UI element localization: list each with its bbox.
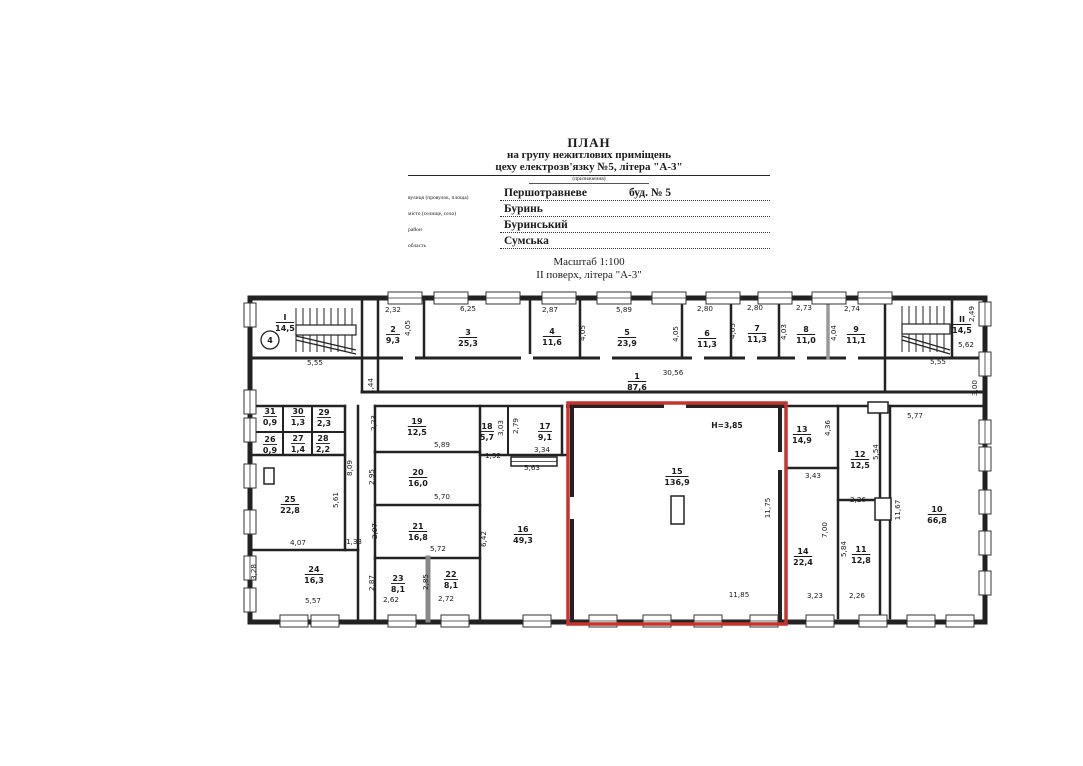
svg-text:8,1: 8,1 xyxy=(444,581,459,590)
dimension-label: 2,80 xyxy=(697,304,713,313)
room-label-11: 1112,8 xyxy=(851,545,871,565)
svg-text:3: 3 xyxy=(465,328,471,337)
dimension-label: 4,04 xyxy=(829,325,838,341)
window-symbol xyxy=(652,292,686,304)
window-symbol xyxy=(388,292,422,304)
dimension-label: 2,23 xyxy=(369,415,378,431)
svg-text:14,5: 14,5 xyxy=(275,324,295,333)
svg-text:15: 15 xyxy=(671,467,683,476)
svg-text:29: 29 xyxy=(318,408,330,417)
room-label-25: 2522,8 xyxy=(280,495,300,515)
dimension-label: 2,62 xyxy=(383,595,399,604)
dimension-label: 2,49 xyxy=(967,306,976,322)
window-symbol xyxy=(979,571,991,595)
dimension-label: 2,95 xyxy=(367,469,376,485)
dimension-label: 5,84 xyxy=(839,541,848,557)
dimension-label: 2,72 xyxy=(438,594,454,603)
svg-text:2,3: 2,3 xyxy=(317,419,331,428)
dimension-label: 6,25 xyxy=(460,304,476,313)
room-label-28: 282,2 xyxy=(316,434,330,454)
svg-text:21: 21 xyxy=(412,522,424,531)
room-label-29: 292,3 xyxy=(317,408,331,428)
svg-text:9,1: 9,1 xyxy=(538,433,553,442)
dimension-label: 3,34 xyxy=(534,445,550,454)
dimension-label: 5,62 xyxy=(958,340,974,349)
window-symbol xyxy=(979,352,991,376)
staircase-left xyxy=(296,308,356,354)
dimension-label: 2,74 xyxy=(844,304,860,313)
dimension-label: 2,32 xyxy=(385,305,401,314)
svg-text:16: 16 xyxy=(517,525,529,534)
dimension-label: 3,23 xyxy=(807,591,823,600)
svg-text:8,1: 8,1 xyxy=(391,585,406,594)
dimension-label: 1,33 xyxy=(346,537,362,546)
svg-text:11,3: 11,3 xyxy=(747,335,767,344)
scanned-plan-page: ПЛАН на групу нежитлових приміщень цеху … xyxy=(0,0,1083,766)
svg-text:25: 25 xyxy=(284,495,296,504)
dimension-label: 5,57 xyxy=(305,596,321,605)
window-symbol xyxy=(812,292,846,304)
svg-text:26: 26 xyxy=(264,435,276,444)
room-label-5: 523,9 xyxy=(617,328,637,348)
svg-text:24: 24 xyxy=(308,565,320,574)
dimension-label: 5,55 xyxy=(930,357,946,366)
dimension-label: 2,85 xyxy=(421,574,430,590)
window-symbol xyxy=(597,292,631,304)
dimension-label: 5,77 xyxy=(907,411,923,420)
window-symbol xyxy=(806,615,834,627)
svg-text:1,4: 1,4 xyxy=(291,445,306,454)
svg-text:30: 30 xyxy=(292,407,304,416)
svg-text:1: 1 xyxy=(634,372,640,381)
svg-text:13: 13 xyxy=(796,425,807,434)
svg-text:14,9: 14,9 xyxy=(792,436,812,445)
svg-text:14: 14 xyxy=(797,547,809,556)
svg-text:22,4: 22,4 xyxy=(793,558,813,567)
svg-text:16,0: 16,0 xyxy=(408,479,428,488)
svg-text:16,8: 16,8 xyxy=(408,533,428,542)
svg-text:12: 12 xyxy=(854,450,865,459)
room-label-26: 260,9 xyxy=(263,435,278,455)
dimension-label: 5,89 xyxy=(434,440,450,449)
svg-text:6: 6 xyxy=(704,329,710,338)
svg-text:49,3: 49,3 xyxy=(513,536,533,545)
dimension-label: 3,00 xyxy=(970,380,979,396)
dimension-label: 3,28 xyxy=(249,564,258,580)
window-symbol xyxy=(244,464,256,488)
svg-text:ІІ: ІІ xyxy=(959,315,965,324)
room-label-27: 271,4 xyxy=(291,434,306,454)
svg-text:136,9: 136,9 xyxy=(664,478,690,487)
room-label-1: 187,6 xyxy=(627,372,647,392)
dimension-label: 8,09 xyxy=(345,460,354,476)
window-symbol xyxy=(441,615,469,627)
svg-text:16,3: 16,3 xyxy=(304,576,324,585)
dimension-label: 5,70 xyxy=(434,492,450,501)
room-label-6: 611,3 xyxy=(697,329,717,349)
window-symbol xyxy=(946,615,974,627)
floor-plan-drawing: 4 І14,5187,629,3325,3411,6523,9611,3711,… xyxy=(0,0,1083,766)
room-label-19: 1912,5 xyxy=(407,417,427,437)
dimension-label: 2,26 xyxy=(849,591,865,600)
dimension-label: 5,89 xyxy=(616,305,632,314)
room-label-31: 310,9 xyxy=(263,407,278,427)
dimension-label: 4,05 xyxy=(671,326,680,342)
svg-text:18: 18 xyxy=(481,422,493,431)
room-label-2: 29,3 xyxy=(386,325,400,345)
dimension-label: 5,55 xyxy=(307,358,323,367)
axis-marker: 4 xyxy=(261,331,279,349)
svg-text:22,8: 22,8 xyxy=(280,506,300,515)
window-symbol xyxy=(434,292,468,304)
staircase-right xyxy=(902,306,950,354)
room-label-15: 15136,9 xyxy=(664,467,690,487)
room-label-3: 325,3 xyxy=(458,328,478,348)
dimension-label: 1,92 xyxy=(485,451,501,460)
dimension-label: 11,75 xyxy=(763,498,772,519)
room-label-12: 1212,5 xyxy=(850,450,870,470)
dimension-label: 1,44 xyxy=(366,378,375,394)
dimension-label: 2,79 xyxy=(511,418,520,434)
dimension-label: 5,63 xyxy=(524,463,540,472)
svg-text:0,9: 0,9 xyxy=(263,418,278,427)
svg-text:14,5: 14,5 xyxy=(952,326,972,335)
svg-text:11,6: 11,6 xyxy=(542,338,562,347)
dimension-label: 6,42 xyxy=(479,531,488,547)
svg-text:5,7: 5,7 xyxy=(480,433,494,442)
column xyxy=(671,496,684,524)
dimension-label: 2,26 xyxy=(850,495,866,504)
svg-text:17: 17 xyxy=(539,422,550,431)
window-symbol xyxy=(244,418,256,442)
room-label-І: І14,5 xyxy=(275,313,295,333)
room-label-22: 228,1 xyxy=(444,570,459,590)
window-symbol xyxy=(244,390,256,414)
svg-text:10: 10 xyxy=(931,505,943,514)
room-label-23: 238,1 xyxy=(391,574,406,594)
svg-text:87,6: 87,6 xyxy=(627,383,647,392)
svg-text:11,0: 11,0 xyxy=(796,336,816,345)
svg-text:2,2: 2,2 xyxy=(316,445,330,454)
room-label-20: 2016,0 xyxy=(408,468,428,488)
svg-text:5: 5 xyxy=(624,328,630,337)
room-label-14: 1422,4 xyxy=(793,547,813,567)
svg-text:11,1: 11,1 xyxy=(846,336,866,345)
room-label-4: 411,6 xyxy=(542,327,562,347)
room-label-9: 911,1 xyxy=(846,325,866,345)
fixture xyxy=(264,468,274,484)
svg-text:20: 20 xyxy=(412,468,424,477)
svg-text:11,3: 11,3 xyxy=(697,340,717,349)
window-symbol xyxy=(244,588,256,612)
svg-text:І: І xyxy=(284,313,287,322)
dimension-label: 2,87 xyxy=(367,575,376,591)
room-label-21: 2116,8 xyxy=(408,522,428,542)
room-label-18: 185,7 xyxy=(480,422,494,442)
dimension-label: 11,67 xyxy=(893,500,902,521)
room-labels-layer: І14,5187,629,3325,3411,6523,9611,3711,38… xyxy=(263,313,972,594)
svg-text:66,8: 66,8 xyxy=(927,516,947,525)
svg-text:9,3: 9,3 xyxy=(386,336,400,345)
svg-text:12,5: 12,5 xyxy=(850,461,870,470)
window-symbol xyxy=(979,302,991,326)
svg-text:12,5: 12,5 xyxy=(407,428,427,437)
door-openings xyxy=(403,354,858,519)
dimension-label: 2,97 xyxy=(370,523,379,539)
svg-text:31: 31 xyxy=(264,407,276,416)
svg-text:7: 7 xyxy=(754,324,760,333)
window-symbol xyxy=(244,303,256,327)
dimension-label: 5,61 xyxy=(331,492,340,508)
room-label-8: 811,0 xyxy=(796,325,816,345)
window-symbol xyxy=(706,292,740,304)
dimension-label: 30,56 xyxy=(663,368,684,377)
svg-text:1,3: 1,3 xyxy=(291,418,305,427)
svg-text:2: 2 xyxy=(390,325,396,334)
dimension-label: 4,05 xyxy=(578,325,587,341)
room-label-16: 1649,3 xyxy=(513,525,533,545)
room-label-24: 2416,3 xyxy=(304,565,324,585)
dimension-label: 7,00 xyxy=(820,522,829,538)
dimension-label: 2,87 xyxy=(542,305,558,314)
svg-text:23,9: 23,9 xyxy=(617,339,637,348)
room-label-17: 179,1 xyxy=(538,422,553,442)
window-symbol xyxy=(311,615,339,627)
svg-text:11: 11 xyxy=(855,545,867,554)
window-symbol xyxy=(859,615,887,627)
svg-text:28: 28 xyxy=(317,434,329,443)
svg-text:12,8: 12,8 xyxy=(851,556,871,565)
dimension-label: 4,07 xyxy=(290,538,306,547)
window-symbol xyxy=(542,292,576,304)
dimension-label: 5,54 xyxy=(871,444,880,460)
window-symbol xyxy=(388,615,416,627)
svg-text:4: 4 xyxy=(549,327,555,336)
svg-text:23: 23 xyxy=(392,574,403,583)
window-symbol xyxy=(979,531,991,555)
dimension-label: 4,05 xyxy=(403,320,412,336)
window-symbol xyxy=(979,447,991,471)
dimension-label: 2,73 xyxy=(796,303,812,312)
svg-text:9: 9 xyxy=(853,325,859,334)
dimension-label: 11,85 xyxy=(729,590,750,599)
window-symbol xyxy=(486,292,520,304)
svg-text:4: 4 xyxy=(267,336,273,345)
window-symbol xyxy=(979,490,991,514)
dimension-label: 4,05 xyxy=(728,323,737,339)
window-symbol xyxy=(907,615,935,627)
dimension-label: 2,80 xyxy=(747,303,763,312)
svg-text:0,9: 0,9 xyxy=(263,446,278,455)
window-symbol xyxy=(244,510,256,534)
height-note: H=3,85 xyxy=(711,421,742,430)
dimension-label: 3,03 xyxy=(496,420,505,436)
svg-text:25,3: 25,3 xyxy=(458,339,478,348)
svg-text:8: 8 xyxy=(803,325,809,334)
dimension-label: 4,03 xyxy=(779,324,788,340)
dimension-label: 4,36 xyxy=(823,420,832,436)
window-symbol xyxy=(523,615,551,627)
window-symbol xyxy=(979,420,991,444)
room-label-13: 1314,9 xyxy=(792,425,812,445)
svg-text:22: 22 xyxy=(445,570,456,579)
room-label-10: 1066,8 xyxy=(927,505,947,525)
room-label-30: 301,3 xyxy=(291,407,305,427)
room-label-7: 711,3 xyxy=(747,324,767,344)
dimension-label: 3,43 xyxy=(805,471,821,480)
window-symbol xyxy=(858,292,892,304)
window-symbol xyxy=(280,615,308,627)
svg-text:19: 19 xyxy=(411,417,423,426)
window-symbol xyxy=(758,292,792,304)
svg-text:27: 27 xyxy=(292,434,303,443)
dimension-label: 5,72 xyxy=(430,544,446,553)
